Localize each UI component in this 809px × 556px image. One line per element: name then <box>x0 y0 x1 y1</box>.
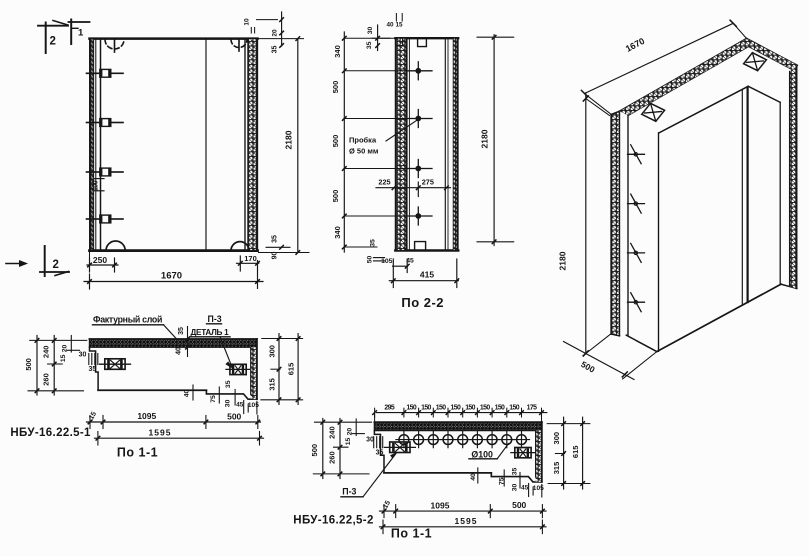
svg-text:500: 500 <box>310 444 319 457</box>
svg-text:40: 40 <box>386 21 394 28</box>
svg-text:1595: 1595 <box>455 516 478 526</box>
svg-text:75: 75 <box>210 395 217 403</box>
svg-text:500: 500 <box>331 190 340 203</box>
svg-text:20: 20 <box>62 345 69 353</box>
svg-text:1: 1 <box>78 28 84 39</box>
svg-text:295: 295 <box>384 404 394 411</box>
svg-text:По 1-1: По 1-1 <box>391 527 432 541</box>
svg-text:40: 40 <box>175 347 182 355</box>
svg-text:500: 500 <box>331 135 340 148</box>
svg-text:Ø 50 мм: Ø 50 мм <box>349 147 379 156</box>
svg-text:105: 105 <box>533 485 544 492</box>
svg-text:260: 260 <box>42 373 51 386</box>
svg-text:Пробка: Пробка <box>349 136 377 145</box>
svg-text:П-3: П-3 <box>342 486 356 496</box>
svg-text:20: 20 <box>272 29 279 37</box>
svg-text:340: 340 <box>333 45 342 58</box>
svg-text:150: 150 <box>436 404 446 411</box>
svg-text:300: 300 <box>267 345 276 358</box>
svg-text:315: 315 <box>267 378 276 391</box>
svg-text:150: 150 <box>480 404 490 411</box>
svg-text:150: 150 <box>465 404 475 411</box>
svg-text:30: 30 <box>79 352 87 359</box>
svg-text:30: 30 <box>512 484 519 492</box>
svg-text:100: 100 <box>93 180 100 191</box>
svg-text:35: 35 <box>178 327 185 335</box>
svg-text:П-3: П-3 <box>208 314 222 324</box>
svg-text:ДЕТАЛЬ 1: ДЕТАЛЬ 1 <box>191 328 230 337</box>
svg-text:1095: 1095 <box>137 411 156 421</box>
svg-text:Ø100: Ø100 <box>471 449 493 459</box>
svg-text:35: 35 <box>272 46 279 54</box>
svg-text:500: 500 <box>227 412 241 422</box>
svg-text:15: 15 <box>345 438 352 446</box>
svg-text:240: 240 <box>327 426 336 439</box>
svg-text:615: 615 <box>286 363 295 376</box>
svg-text:90: 90 <box>271 252 278 260</box>
svg-text:1095: 1095 <box>431 500 450 510</box>
svg-text:30: 30 <box>224 399 231 407</box>
svg-text:500: 500 <box>331 81 340 94</box>
svg-text:2180: 2180 <box>284 130 294 149</box>
svg-text:Фактурный слой: Фактурный слой <box>93 315 162 325</box>
svg-text:225: 225 <box>378 177 390 186</box>
svg-text:35: 35 <box>271 235 278 243</box>
svg-text:240: 240 <box>42 346 51 359</box>
svg-text:105: 105 <box>248 402 259 409</box>
svg-text:250: 250 <box>93 255 107 265</box>
svg-text:150: 150 <box>495 404 505 411</box>
svg-text:35: 35 <box>366 41 373 49</box>
svg-text:615: 615 <box>571 446 580 459</box>
svg-text:2180: 2180 <box>479 129 489 148</box>
svg-text:35: 35 <box>89 366 97 373</box>
svg-text:НБУ-16.22.5-1: НБУ-16.22.5-1 <box>10 427 91 439</box>
svg-text:15: 15 <box>395 21 403 28</box>
svg-text:35: 35 <box>225 380 232 388</box>
svg-text:20: 20 <box>346 428 353 436</box>
svg-text:175: 175 <box>527 404 537 411</box>
svg-text:105: 105 <box>381 258 393 265</box>
svg-text:2: 2 <box>52 259 58 271</box>
svg-text:15: 15 <box>60 354 67 362</box>
svg-text:2: 2 <box>49 36 55 48</box>
svg-text:1670: 1670 <box>161 270 182 281</box>
svg-text:50: 50 <box>367 256 374 264</box>
svg-text:150: 150 <box>421 404 431 411</box>
svg-text:260: 260 <box>327 451 336 464</box>
svg-text:275: 275 <box>422 177 434 186</box>
svg-text:150: 150 <box>450 404 460 411</box>
svg-text:150: 150 <box>406 404 416 411</box>
svg-text:35: 35 <box>512 468 519 476</box>
svg-text:35: 35 <box>376 450 384 457</box>
svg-text:30: 30 <box>366 437 374 444</box>
svg-text:315: 315 <box>552 462 561 475</box>
svg-text:2180: 2180 <box>558 251 568 270</box>
svg-text:40: 40 <box>470 473 477 481</box>
svg-text:1595: 1595 <box>149 427 172 437</box>
svg-text:По 2-2: По 2-2 <box>401 295 444 310</box>
svg-text:40: 40 <box>184 390 191 398</box>
svg-text:45: 45 <box>236 401 244 408</box>
svg-text:10: 10 <box>244 18 251 26</box>
svg-text:300: 300 <box>552 432 561 445</box>
svg-text:500: 500 <box>24 358 33 371</box>
svg-text:45: 45 <box>521 484 529 491</box>
svg-text:500: 500 <box>512 500 526 510</box>
svg-text:По 1-1: По 1-1 <box>117 446 158 460</box>
svg-text:170: 170 <box>244 254 257 263</box>
svg-text:30: 30 <box>367 27 374 35</box>
svg-text:НБУ-16.22,5-2: НБУ-16.22,5-2 <box>293 515 373 527</box>
svg-text:150: 150 <box>509 404 519 411</box>
svg-text:415: 415 <box>420 269 434 279</box>
svg-text:35: 35 <box>370 239 377 247</box>
svg-text:340: 340 <box>333 226 342 239</box>
